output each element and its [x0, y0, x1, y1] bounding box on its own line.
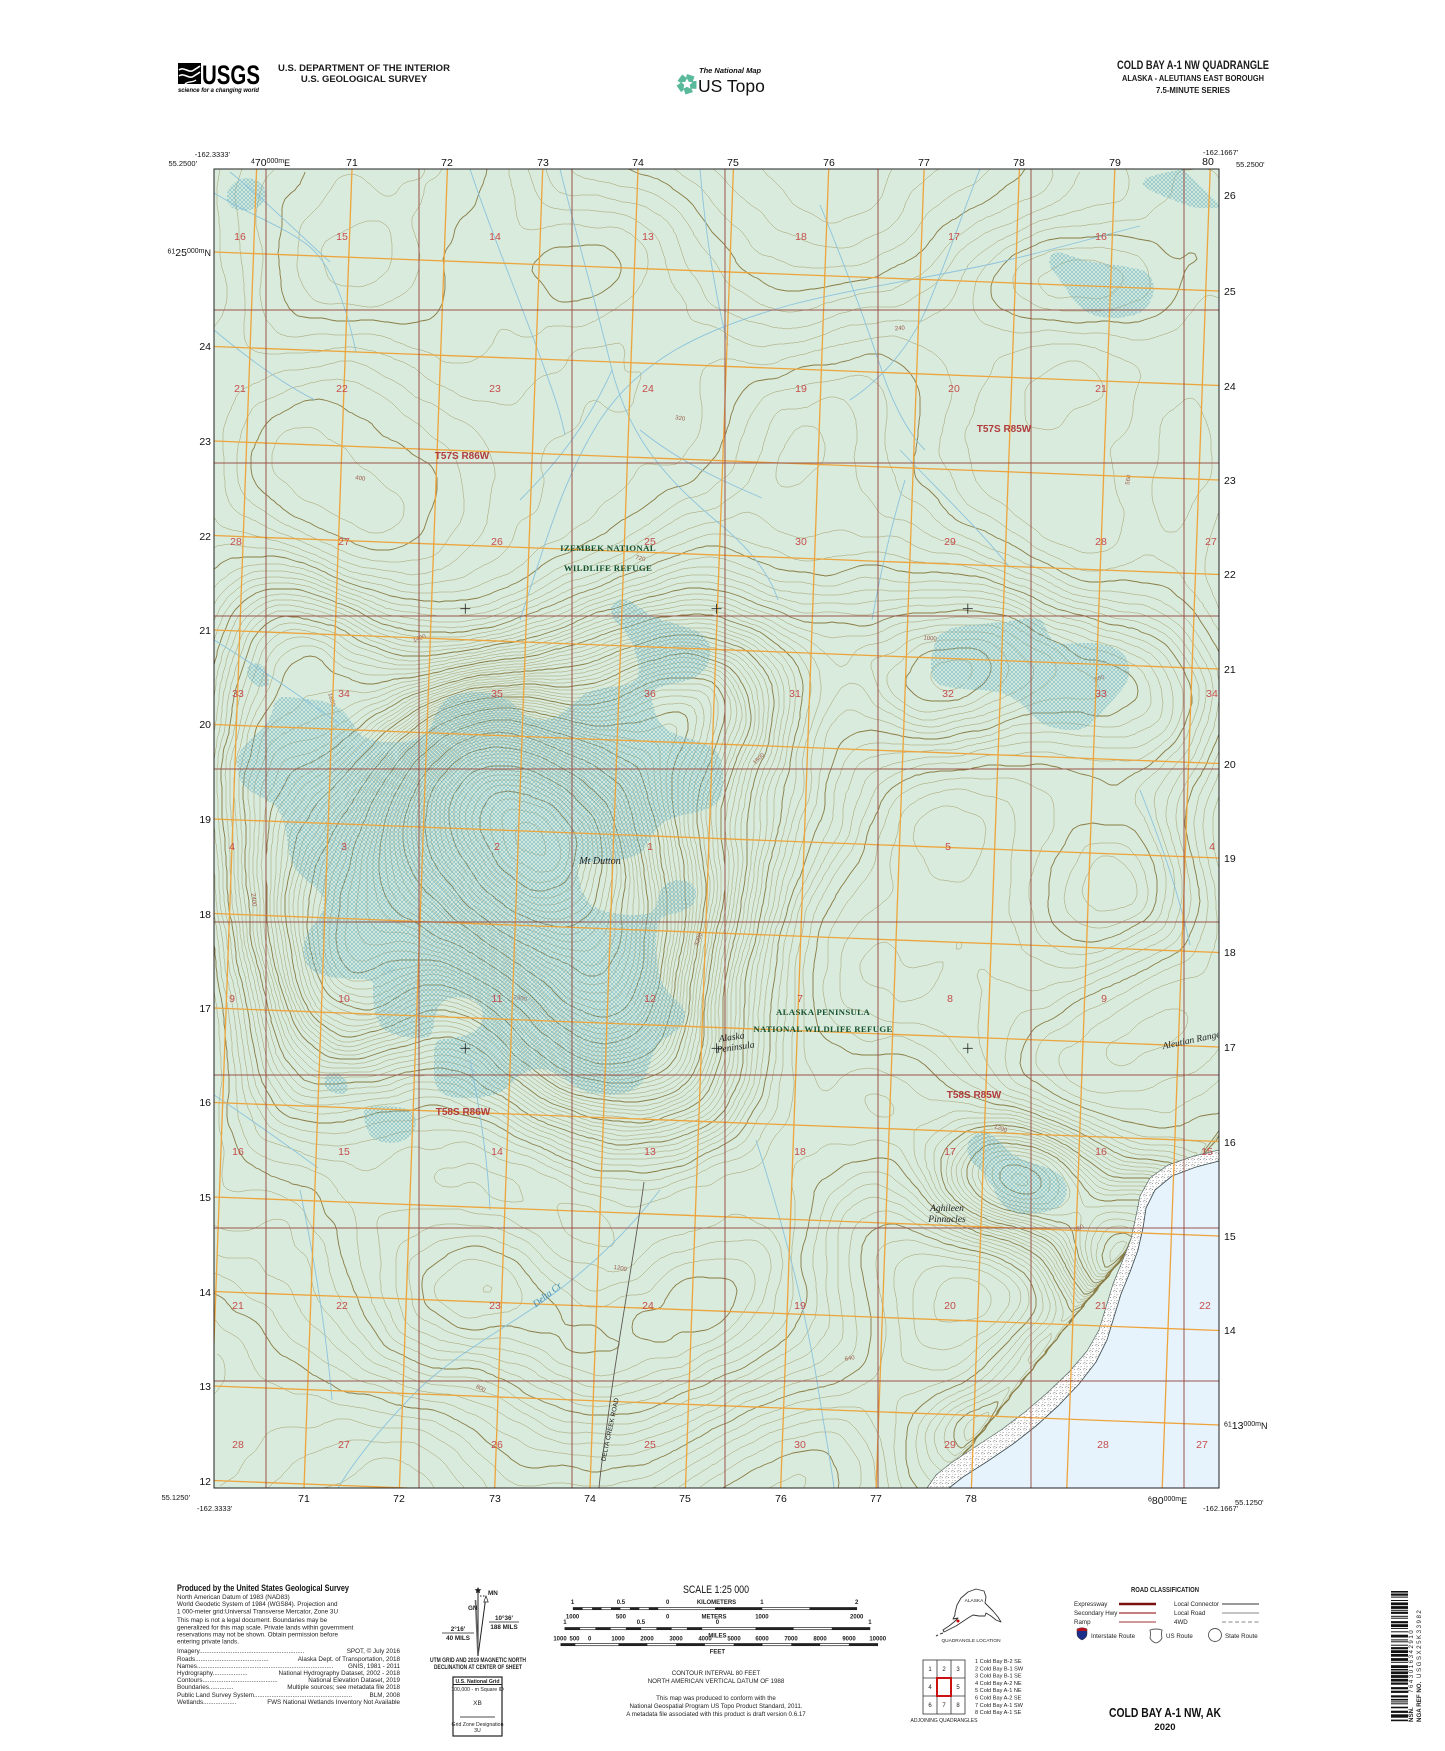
svg-text:3 Cold Bay B-1 SE: 3 Cold Bay B-1 SE	[975, 1674, 1022, 1680]
svg-text:0.5: 0.5	[617, 1600, 626, 1606]
svg-text:78: 78	[1013, 157, 1025, 169]
svg-text:T57S R85W: T57S R85W	[977, 424, 1032, 435]
svg-text:BLM, 2008: BLM, 2008	[370, 1692, 401, 1699]
svg-text:33: 33	[232, 688, 244, 700]
svg-text:GN: GN	[468, 1605, 478, 1612]
svg-text:Alaska Dept. of Transportat: Alaska Dept. of Transportation, 2018	[298, 1656, 401, 1663]
svg-text:30: 30	[795, 536, 807, 548]
svg-text:18: 18	[795, 231, 807, 243]
svg-text:9000: 9000	[842, 1637, 856, 1643]
svg-text:USGS: USGS	[202, 60, 260, 90]
svg-text:25: 25	[644, 1439, 656, 1451]
svg-text:T58S R86W: T58S R86W	[436, 1107, 491, 1118]
svg-text:3U: 3U	[474, 1728, 481, 1734]
svg-text:A metadata file associated wit: A metadata file associated with this pro…	[626, 1711, 806, 1718]
svg-text:2°16': 2°16'	[451, 1625, 466, 1633]
svg-text:1 000-meter grid:Universal Tra: 1 000-meter grid:Universal Transverse Me…	[177, 1608, 338, 1615]
svg-text:500: 500	[569, 1637, 580, 1643]
svg-text:55.1250': 55.1250'	[1235, 1498, 1264, 1507]
svg-text:76: 76	[775, 1493, 787, 1505]
svg-text:The National Map: The National Map	[699, 66, 762, 75]
svg-text:16: 16	[1224, 1137, 1236, 1149]
svg-text:17: 17	[1224, 1042, 1236, 1054]
svg-text:20: 20	[948, 383, 960, 395]
svg-text:20: 20	[199, 719, 211, 731]
svg-text:Secondary Hwy: Secondary Hwy	[1074, 1610, 1118, 1617]
svg-text:21: 21	[1095, 1300, 1107, 1312]
svg-text:15: 15	[1201, 1146, 1213, 1158]
svg-text:T58S R85W: T58S R85W	[947, 1090, 1002, 1101]
svg-text:72: 72	[441, 157, 453, 169]
svg-text:Local Road: Local Road	[1174, 1610, 1206, 1617]
svg-text:4: 4	[1209, 841, 1215, 853]
svg-text:3000: 3000	[669, 1637, 683, 1643]
svg-text:23: 23	[489, 383, 501, 395]
svg-text:US Route: US Route	[1166, 1633, 1193, 1640]
svg-text:Local Connector: Local Connector	[1174, 1601, 1219, 1608]
svg-text:33: 33	[1095, 688, 1107, 700]
svg-text:75: 75	[727, 157, 739, 169]
svg-text:24: 24	[642, 383, 654, 395]
svg-text:27: 27	[1205, 536, 1217, 548]
svg-text:22: 22	[199, 531, 211, 543]
svg-text:1000: 1000	[923, 635, 937, 642]
svg-text:NORTH AMERICAN VERTICAL DATUM: NORTH AMERICAN VERTICAL DATUM OF 1988	[648, 1678, 785, 1685]
svg-text:SCALE 1:25 000: SCALE 1:25 000	[683, 1584, 749, 1596]
svg-text:-162.3333': -162.3333'	[195, 150, 231, 159]
svg-text:30: 30	[794, 1439, 806, 1451]
svg-text:79: 79	[1109, 157, 1121, 169]
svg-text:55.2500': 55.2500'	[168, 159, 197, 168]
svg-text:MN: MN	[488, 1590, 498, 1597]
svg-text:26: 26	[491, 1439, 503, 1451]
svg-text:14: 14	[1224, 1325, 1236, 1337]
svg-text:IZEMBEK NATIONAL: IZEMBEK NATIONAL	[560, 543, 656, 553]
svg-text:100,000 - m Square ID: 100,000 - m Square ID	[451, 1687, 504, 1693]
svg-text:34: 34	[338, 688, 350, 700]
svg-text:0.5: 0.5	[637, 1620, 646, 1626]
svg-text:16: 16	[1095, 231, 1107, 243]
svg-text:World Geodetic System of 1984: World Geodetic System of 1984 (WGS84). P…	[177, 1601, 338, 1608]
svg-text:QUADRANGLE LOCATION: QUADRANGLE LOCATION	[941, 1638, 1001, 1644]
svg-text:28: 28	[232, 1439, 244, 1451]
svg-text:FEET: FEET	[710, 1650, 726, 1656]
svg-text:10°36': 10°36'	[495, 1614, 514, 1622]
svg-text:5: 5	[945, 841, 951, 853]
svg-text:25: 25	[1224, 286, 1236, 298]
svg-text:6000: 6000	[755, 1637, 769, 1643]
svg-text:U.S. DEPARTMENT OF THE INTERIO: U.S. DEPARTMENT OF THE INTERIOR	[278, 63, 450, 74]
svg-text:WILDLIFE REFUGE: WILDLIFE REFUGE	[564, 563, 652, 573]
svg-text:15: 15	[336, 231, 348, 243]
svg-text:XB: XB	[473, 1700, 482, 1707]
svg-text:ALASKA: ALASKA	[965, 1598, 984, 1604]
svg-text:15: 15	[199, 1192, 211, 1204]
svg-text:National Geospatial Program US: National Geospatial Program US Topo Prod…	[629, 1703, 802, 1710]
svg-text:74: 74	[632, 157, 644, 169]
svg-text:DECLINATION AT CENTER OF SHEET: DECLINATION AT CENTER OF SHEET	[434, 1664, 522, 1671]
svg-text:3: 3	[341, 841, 347, 853]
svg-text:26: 26	[491, 536, 503, 548]
svg-text:16: 16	[199, 1097, 211, 1109]
svg-text:27: 27	[1196, 1439, 1208, 1451]
svg-text:7643016342910: 7643016342910	[1408, 1629, 1415, 1693]
svg-text:23: 23	[1224, 475, 1236, 487]
svg-text:5 Cold Bay A-1 NE: 5 Cold Bay A-1 NE	[975, 1688, 1022, 1694]
svg-text:21: 21	[199, 625, 211, 637]
svg-text:2 Cold Bay B-1 SW: 2 Cold Bay B-1 SW	[975, 1666, 1024, 1672]
svg-text:15: 15	[1224, 1231, 1236, 1243]
svg-text:Ramp: Ramp	[1074, 1619, 1091, 1626]
svg-text:1000: 1000	[755, 1615, 769, 1621]
svg-text:5000: 5000	[727, 1637, 741, 1643]
svg-text:80: 80	[1202, 156, 1214, 168]
svg-text:29: 29	[944, 536, 956, 548]
svg-text:500: 500	[616, 1615, 627, 1621]
svg-text:GNIS, 1981 - 2011: GNIS, 1981 - 2011	[348, 1663, 401, 1670]
svg-text:NGA REF NO.: NGA REF NO.	[1416, 1681, 1423, 1722]
svg-text:Pinnacles: Pinnacles	[927, 1215, 966, 1225]
svg-text:ROAD CLASSIFICATION: ROAD CLASSIFICATION	[1131, 1587, 1199, 1594]
svg-text:CONTOUR INTERVAL 80 FEET: CONTOUR INTERVAL 80 FEET	[672, 1670, 761, 1677]
svg-text:National Hydrography Dataset: National Hydrography Dataset, 2002 - 201…	[279, 1670, 401, 1677]
svg-text:55.1250': 55.1250'	[161, 1493, 190, 1502]
svg-text:COLD BAY A-1 NW, AK: COLD BAY A-1 NW, AK	[1109, 1706, 1221, 1720]
svg-text:13: 13	[199, 1381, 211, 1393]
svg-text:-162.3333': -162.3333'	[197, 1504, 233, 1513]
svg-text:15: 15	[338, 1146, 350, 1158]
svg-text:20: 20	[1224, 759, 1236, 771]
svg-text:28: 28	[230, 536, 242, 548]
svg-text:240: 240	[895, 326, 906, 333]
svg-text:16: 16	[232, 1146, 244, 1158]
svg-text:Mt Dutton: Mt Dutton	[578, 856, 620, 867]
svg-text:55.2500': 55.2500'	[1236, 160, 1265, 169]
svg-text:NATIONAL WILDLIFE REFUGE: NATIONAL WILDLIFE REFUGE	[753, 1024, 892, 1034]
svg-text:10000: 10000	[869, 1637, 886, 1643]
svg-text:74: 74	[584, 1493, 596, 1505]
svg-text:19: 19	[199, 814, 211, 826]
svg-text:22: 22	[1224, 569, 1236, 581]
svg-text:8: 8	[947, 993, 953, 1005]
svg-text:Contours......................: Contours................................…	[177, 1677, 278, 1684]
svg-text:28: 28	[1097, 1439, 1109, 1451]
svg-text:NSN.: NSN.	[1408, 1707, 1415, 1722]
svg-text:8000: 8000	[813, 1637, 827, 1643]
svg-text:4000: 4000	[698, 1637, 712, 1643]
svg-text:7: 7	[797, 993, 803, 1005]
svg-text:2400: 2400	[249, 893, 256, 907]
svg-text:18: 18	[199, 909, 211, 921]
svg-text:14: 14	[491, 1146, 503, 1158]
svg-text:12: 12	[199, 1476, 211, 1488]
svg-text:31: 31	[789, 688, 801, 700]
svg-text:FWS National Wetlands Inven: FWS National Wetlands Inventory Not Avai…	[267, 1699, 400, 1706]
svg-text:12: 12	[644, 993, 656, 1005]
svg-text:17: 17	[944, 1146, 956, 1158]
svg-text:71: 71	[346, 157, 358, 169]
svg-text:U.S. National Grid: U.S. National Grid	[455, 1679, 499, 1685]
svg-text:Wetlands...................: Wetlands...................	[177, 1699, 237, 1706]
svg-text:20: 20	[944, 1300, 956, 1312]
svg-text:Produced by the United States: Produced by the United States Geological…	[177, 1583, 349, 1593]
svg-text:T57S R86W: T57S R86W	[435, 451, 490, 462]
svg-text:14: 14	[199, 1287, 211, 1299]
svg-text:13: 13	[644, 1146, 656, 1158]
svg-text:34: 34	[1206, 688, 1218, 700]
svg-text:ALASKA - ALEUTIANS EAST BOROUG: ALASKA - ALEUTIANS EAST BOROUGH	[1122, 73, 1264, 83]
svg-text:23: 23	[199, 436, 211, 448]
svg-text:entering private lands.: entering private lands.	[177, 1639, 239, 1646]
svg-text:17: 17	[948, 231, 960, 243]
svg-text:SPOT, © July 2016: SPOT, © July 2016	[347, 1647, 401, 1655]
svg-text:18: 18	[1224, 947, 1236, 959]
svg-text:7 Cold Bay A-1 SW: 7 Cold Bay A-1 SW	[975, 1703, 1024, 1709]
svg-text:USGSX25K33982: USGSX25K33982	[1416, 1609, 1423, 1678]
svg-text:Aghileen: Aghileen	[929, 1204, 964, 1214]
svg-text:21: 21	[1095, 383, 1107, 395]
svg-text:1000: 1000	[611, 1637, 625, 1643]
svg-text:16: 16	[1095, 1146, 1107, 1158]
svg-text:76: 76	[823, 157, 835, 169]
svg-text:Public Land Survey System..: Public Land Survey System...............…	[177, 1692, 352, 1699]
svg-text:77: 77	[870, 1493, 882, 1505]
svg-text:72: 72	[393, 1493, 405, 1505]
svg-text:24: 24	[642, 1300, 654, 1312]
svg-text:North American Datum of 1983 (: North American Datum of 1983 (NAD83)	[177, 1594, 290, 1601]
svg-text:24: 24	[1224, 381, 1236, 393]
svg-text:U.S. GEOLOGICAL SURVEY: U.S. GEOLOGICAL SURVEY	[301, 74, 428, 85]
svg-text:21: 21	[232, 1300, 244, 1312]
svg-text:reservations may not be shown.: reservations may not be shown. Obtain pe…	[177, 1632, 338, 1639]
svg-text:US Topo: US Topo	[698, 76, 765, 96]
svg-text:Multiple sources; see metad: Multiple sources; see metadata file 2018	[287, 1684, 400, 1691]
svg-text:This map was produced to confo: This map was produced to conform with th…	[656, 1695, 776, 1702]
svg-text:29: 29	[944, 1439, 956, 1451]
svg-text:-162.1667': -162.1667'	[1203, 1504, 1239, 1513]
svg-text:78: 78	[965, 1493, 977, 1505]
svg-text:7000: 7000	[784, 1637, 798, 1643]
svg-text:9: 9	[229, 993, 235, 1005]
svg-text:11: 11	[492, 993, 503, 1005]
svg-text:4: 4	[229, 841, 235, 853]
svg-text:16: 16	[234, 231, 246, 243]
svg-text:Imagery.......................: Imagery.................................…	[177, 1648, 304, 1655]
svg-text:Interstate Route: Interstate Route	[1091, 1633, 1136, 1640]
svg-text:24: 24	[199, 341, 211, 353]
svg-text:32: 32	[942, 688, 954, 700]
svg-text:Roads.........................: Roads...................................…	[177, 1656, 269, 1663]
svg-text:COLD BAY A-1 NW QUADRANGLE: COLD BAY A-1 NW QUADRANGLE	[1117, 60, 1269, 72]
svg-text:UTM GRID AND 2019 MAGNETIC NOR: UTM GRID AND 2019 MAGNETIC NORTH	[430, 1657, 526, 1664]
svg-text:7.5-MINUTE SERIES: 7.5-MINUTE SERIES	[1156, 85, 1230, 95]
svg-text:22: 22	[336, 1300, 348, 1312]
svg-text:science for a changing world: science for a changing world	[178, 87, 260, 94]
svg-text:77: 77	[918, 157, 930, 169]
svg-text:40 MILS: 40 MILS	[446, 1635, 470, 1642]
svg-text:21: 21	[1224, 664, 1236, 676]
svg-text:19: 19	[794, 1300, 806, 1312]
svg-text:188 MILS: 188 MILS	[490, 1624, 517, 1631]
svg-text:4 Cold Bay A-2 NE: 4 Cold Bay A-2 NE	[975, 1681, 1022, 1687]
svg-text:23: 23	[489, 1300, 501, 1312]
svg-text:28: 28	[1095, 536, 1107, 548]
svg-text:State Route: State Route	[1225, 1633, 1258, 1640]
svg-text:13: 13	[642, 231, 654, 243]
svg-text:generalized for this map scale: generalized for this map scale. Private …	[177, 1624, 354, 1631]
svg-text:2000: 2000	[640, 1637, 654, 1643]
svg-text:National Elevation Dataset,: National Elevation Dataset, 2019	[308, 1677, 400, 1684]
svg-text:4WD: 4WD	[1174, 1619, 1188, 1626]
svg-text:22: 22	[336, 383, 348, 395]
svg-text:Hydrography...................: Hydrography....................	[177, 1670, 248, 1677]
svg-text:73: 73	[489, 1493, 501, 1505]
svg-text:36: 36	[644, 688, 656, 700]
svg-text:METERS: METERS	[701, 1615, 726, 1621]
svg-text:2000: 2000	[850, 1615, 864, 1621]
svg-text:18: 18	[794, 1146, 806, 1158]
svg-text:22: 22	[1199, 1300, 1211, 1312]
svg-text:1000: 1000	[553, 1637, 567, 1643]
svg-text:17: 17	[199, 1003, 211, 1015]
svg-text:75: 75	[679, 1493, 691, 1505]
svg-text:19: 19	[1224, 853, 1236, 865]
svg-text:Boundaries..............: Boundaries..............	[177, 1684, 234, 1691]
svg-text:21: 21	[234, 383, 246, 395]
svg-text:35: 35	[491, 688, 503, 700]
svg-text:1: 1	[647, 841, 653, 853]
svg-text:9: 9	[1101, 993, 1107, 1005]
svg-text:2: 2	[494, 841, 500, 853]
svg-text:Expressway: Expressway	[1074, 1601, 1108, 1608]
svg-text:73: 73	[537, 157, 549, 169]
svg-text:1000: 1000	[566, 1615, 580, 1621]
svg-text:Names.........................: Names...................................…	[177, 1663, 334, 1670]
svg-text:10: 10	[338, 993, 350, 1005]
svg-text:27: 27	[338, 536, 350, 548]
svg-text:ADJOINING QUADRANGLES: ADJOINING QUADRANGLES	[911, 1718, 979, 1724]
svg-text:6 Cold Bay A-2 SE: 6 Cold Bay A-2 SE	[975, 1696, 1022, 1702]
svg-text:8 Cold Bay A-1 SE: 8 Cold Bay A-1 SE	[975, 1710, 1022, 1716]
svg-text:27: 27	[338, 1439, 350, 1451]
svg-text:19: 19	[795, 383, 807, 395]
svg-text:This map is not a legal docume: This map is not a legal document. Bounda…	[177, 1617, 328, 1624]
svg-text:ALASKA PENINSULA: ALASKA PENINSULA	[776, 1007, 870, 1017]
svg-text:71: 71	[298, 1493, 310, 1505]
svg-text:1 Cold Bay B-2 SE: 1 Cold Bay B-2 SE	[975, 1659, 1022, 1665]
svg-text:14: 14	[489, 231, 501, 243]
svg-text:2020: 2020	[1154, 1722, 1175, 1733]
svg-text:26: 26	[1224, 190, 1236, 202]
svg-text:KILOMETERS: KILOMETERS	[697, 1600, 736, 1606]
